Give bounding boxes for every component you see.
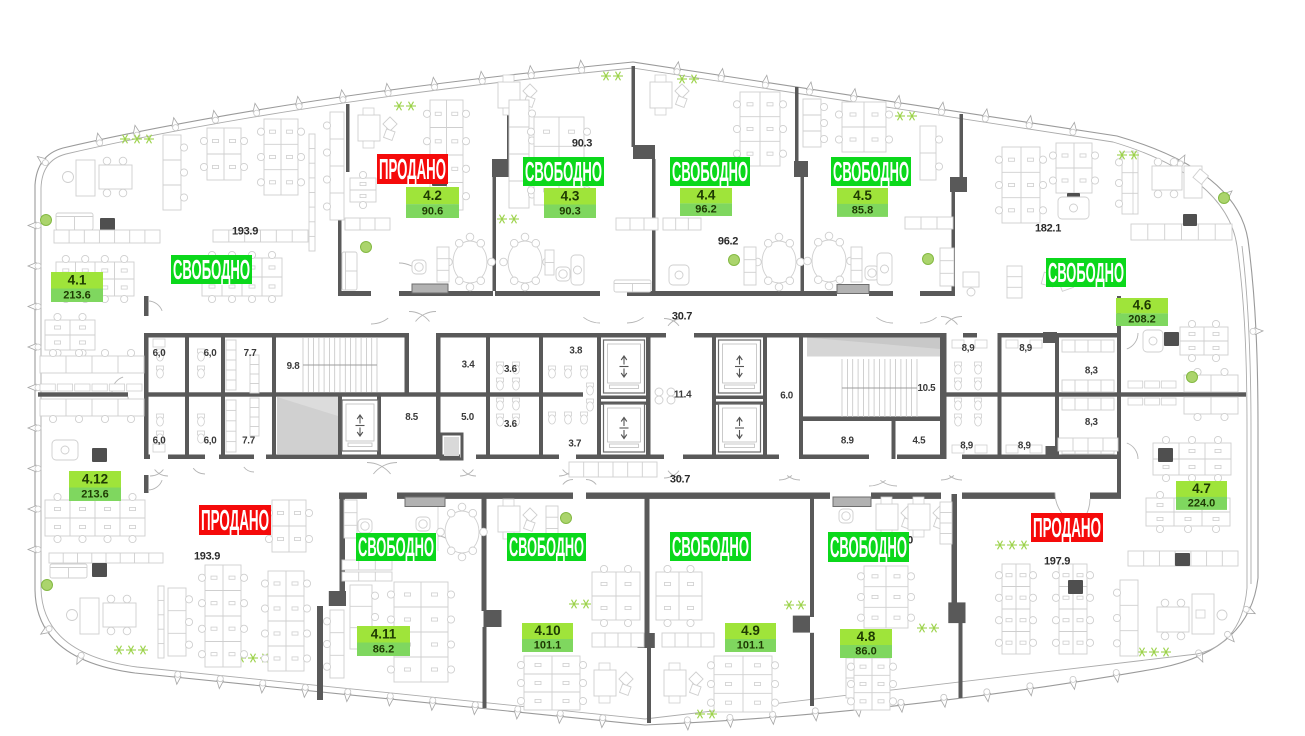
svg-text:193.9: 193.9 <box>194 551 220 563</box>
svg-text:90.3: 90.3 <box>559 206 580 218</box>
svg-text:10.5: 10.5 <box>917 383 936 394</box>
svg-text:4.5: 4.5 <box>913 436 927 447</box>
svg-text:3.7: 3.7 <box>568 438 582 449</box>
svg-text:96.2: 96.2 <box>718 236 738 248</box>
svg-text:4.7: 4.7 <box>1192 481 1211 496</box>
svg-text:90.3: 90.3 <box>572 138 592 150</box>
svg-text:СВОБОДНО: СВОБОДНО <box>672 531 749 562</box>
svg-text:4.1: 4.1 <box>68 273 87 288</box>
svg-text:8.9: 8.9 <box>841 436 855 447</box>
svg-text:ПРОДАНО: ПРОДАНО <box>1033 512 1101 543</box>
svg-text:101.1: 101.1 <box>737 640 765 652</box>
svg-text:6,0: 6,0 <box>153 348 167 359</box>
svg-text:85.8: 85.8 <box>852 205 873 217</box>
svg-text:4.11: 4.11 <box>371 627 397 642</box>
svg-text:6,0: 6,0 <box>204 436 218 447</box>
svg-text:193.9: 193.9 <box>232 226 258 238</box>
svg-text:213.6: 213.6 <box>63 290 91 302</box>
svg-text:4.9: 4.9 <box>741 623 760 638</box>
svg-text:7.7: 7.7 <box>244 348 258 359</box>
svg-text:8,9: 8,9 <box>1019 343 1033 354</box>
svg-text:СВОБОДНО: СВОБОДНО <box>672 156 748 187</box>
svg-text:4.8: 4.8 <box>857 629 876 644</box>
svg-text:4.2: 4.2 <box>423 188 442 203</box>
svg-text:30.7: 30.7 <box>672 311 692 323</box>
svg-text:5.0: 5.0 <box>461 412 475 423</box>
svg-text:90.6: 90.6 <box>422 206 443 218</box>
svg-text:96.2: 96.2 <box>695 204 716 216</box>
svg-text:8,9: 8,9 <box>1018 441 1032 452</box>
svg-text:9.8: 9.8 <box>287 361 301 372</box>
svg-text:ПРОДАНО: ПРОДАНО <box>379 154 446 186</box>
svg-text:ПРОДАНО: ПРОДАНО <box>201 505 269 537</box>
svg-text:11.4: 11.4 <box>674 390 692 401</box>
svg-text:СВОБОДНО: СВОБОДНО <box>509 532 584 562</box>
svg-text:3.4: 3.4 <box>462 359 476 370</box>
svg-text:182.1: 182.1 <box>1035 223 1061 235</box>
svg-text:213.6: 213.6 <box>81 489 109 501</box>
svg-text:4.10: 4.10 <box>534 623 560 638</box>
svg-text:СВОБОДНО: СВОБОДНО <box>1048 257 1124 288</box>
svg-text:4.3: 4.3 <box>561 189 580 204</box>
svg-text:4.12: 4.12 <box>82 472 108 487</box>
svg-text:8,9: 8,9 <box>960 441 974 452</box>
svg-text:86.0: 86.0 <box>855 646 876 658</box>
svg-text:7.7: 7.7 <box>242 436 256 447</box>
svg-text:8.5: 8.5 <box>405 412 419 423</box>
svg-text:СВОБОДНО: СВОБОДНО <box>173 254 250 285</box>
svg-text:3.6: 3.6 <box>504 364 518 375</box>
svg-text:197.9: 197.9 <box>1044 556 1070 568</box>
svg-text:СВОБОДНО: СВОБОДНО <box>358 532 434 562</box>
svg-text:8,3: 8,3 <box>1085 366 1099 377</box>
svg-text:СВОБОДНО: СВОБОДНО <box>525 156 602 187</box>
svg-text:224.0: 224.0 <box>1188 498 1216 510</box>
svg-text:6,0: 6,0 <box>153 436 167 447</box>
svg-text:3.8: 3.8 <box>569 345 583 356</box>
svg-text:8,3: 8,3 <box>1085 417 1099 428</box>
svg-text:4.6: 4.6 <box>1133 297 1152 312</box>
svg-text:4.4: 4.4 <box>697 187 716 202</box>
svg-text:4.5: 4.5 <box>853 188 872 203</box>
svg-text:6,0: 6,0 <box>204 348 218 359</box>
svg-text:3.6: 3.6 <box>504 419 518 430</box>
svg-text:6.0: 6.0 <box>780 390 794 401</box>
svg-text:СВОБОДНО: СВОБОДНО <box>833 156 909 187</box>
svg-text:86.2: 86.2 <box>373 644 394 656</box>
svg-text:СВОБОДНО: СВОБОДНО <box>830 532 907 564</box>
svg-text:30.7: 30.7 <box>670 474 690 486</box>
svg-text:101.1: 101.1 <box>534 640 562 652</box>
svg-text:208.2: 208.2 <box>1128 314 1156 326</box>
svg-text:8,9: 8,9 <box>962 343 976 354</box>
